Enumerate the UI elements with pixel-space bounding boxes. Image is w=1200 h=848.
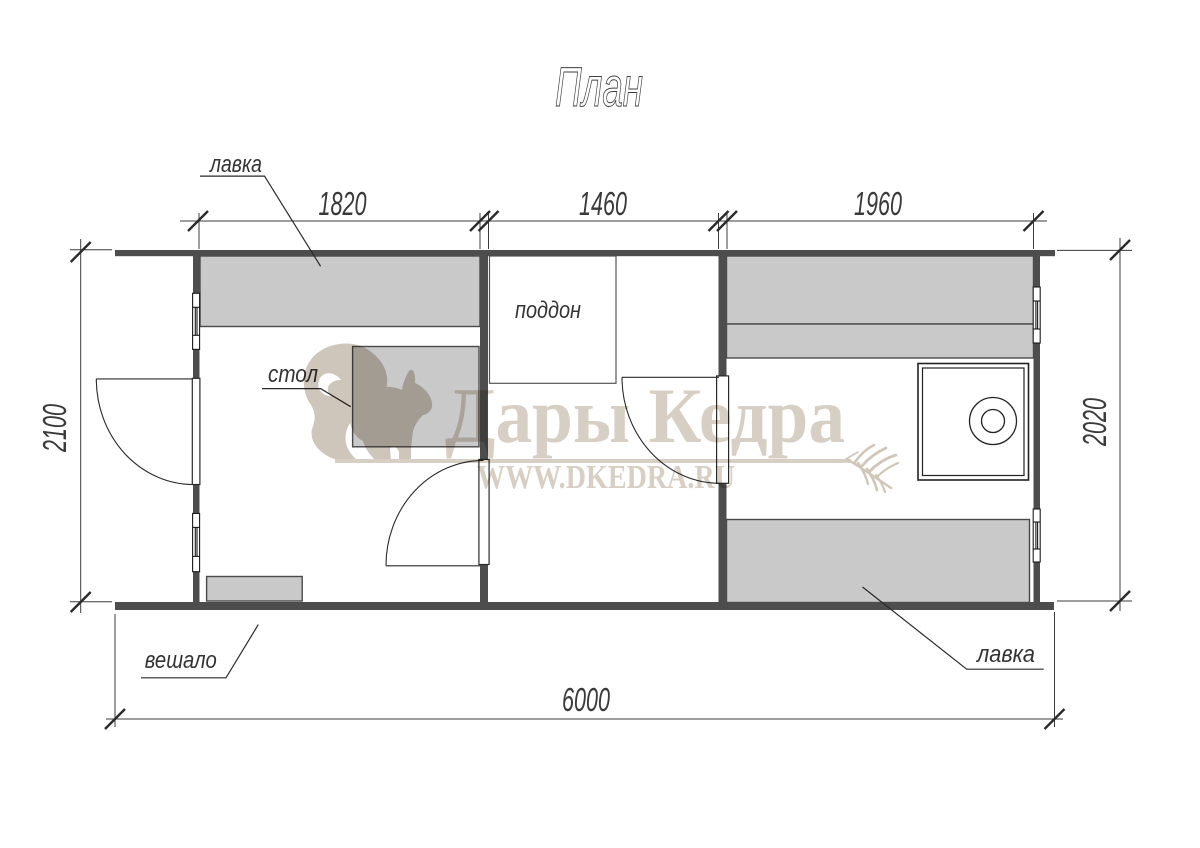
svg-text:План: План	[555, 55, 643, 118]
svg-text:6000: 6000	[562, 681, 610, 718]
svg-text:2100: 2100	[36, 404, 73, 453]
svg-text:1820: 1820	[319, 185, 367, 222]
svg-text:WWW.DKEDRA.RU: WWW.DKEDRA.RU	[477, 459, 735, 496]
svg-text:2020: 2020	[1076, 398, 1113, 447]
svg-text:1960: 1960	[854, 185, 902, 222]
svg-text:лавка: лавка	[975, 641, 1035, 668]
svg-text:вешало: вешало	[145, 647, 217, 674]
svg-text:поддон: поддон	[515, 297, 581, 324]
svg-text:Дары Кедра: Дары Кедра	[445, 372, 845, 459]
svg-text:лавка: лавка	[208, 151, 262, 178]
svg-text:1460: 1460	[579, 185, 627, 222]
